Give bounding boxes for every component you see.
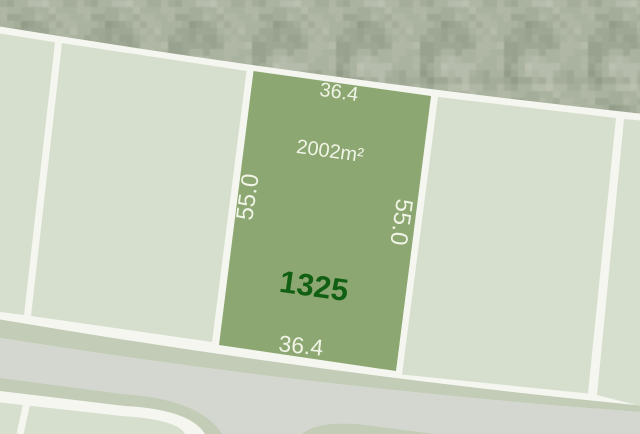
svg-text:36.4: 36.4 — [277, 330, 324, 361]
